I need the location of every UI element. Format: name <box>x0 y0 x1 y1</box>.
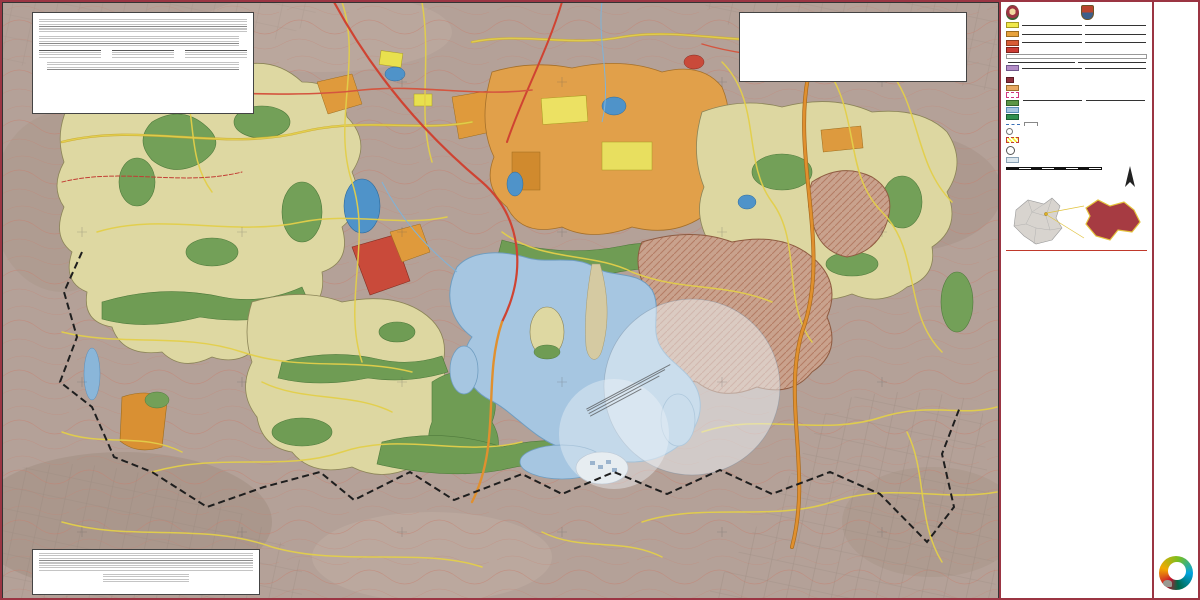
signature-blocks <box>39 50 247 58</box>
section-infraestructura <box>1006 77 1147 83</box>
section-equipamiento <box>1006 47 1147 64</box>
limite-sectores-icon <box>1006 121 1020 127</box>
location-map <box>1006 192 1147 248</box>
conjuntos-box <box>739 12 967 82</box>
limite-uso-suelo-icon <box>1024 122 1038 126</box>
title-bar <box>1152 2 1198 598</box>
notes-box <box>32 549 260 595</box>
section-habitacional <box>1006 22 1147 30</box>
atizapan-seal-icon <box>1081 5 1094 20</box>
certification-paragraph <box>47 62 238 71</box>
legend-panel <box>999 2 1152 598</box>
plan-parcial-swatch <box>1006 85 1019 91</box>
anp-swatch <box>1006 114 1019 120</box>
edomex-seal-icon <box>1006 5 1019 20</box>
certification-paragraph <box>39 19 247 33</box>
aerodrome-legend <box>1006 157 1147 163</box>
north-arrow <box>1119 165 1141 190</box>
industria-swatch <box>1006 65 1019 71</box>
equipamiento-swatch <box>1006 47 1019 53</box>
municipal-logo-icon <box>1159 556 1193 590</box>
map-id-section <box>1006 250 1147 262</box>
infraestructura-swatch <box>1006 77 1014 83</box>
scale-bar <box>1006 167 1102 171</box>
legend-header <box>1006 5 1147 20</box>
section-anp <box>1006 114 1147 120</box>
aerodrome-swatch <box>1006 157 1019 163</box>
section-centro-urbano <box>1006 31 1147 38</box>
section-corredor-urbano <box>1006 40 1147 46</box>
section-plan-parcial <box>1006 85 1147 98</box>
cuerpo-agua-swatch <box>1006 107 1019 113</box>
certification-box <box>32 12 254 114</box>
plan-parcial-outline-swatch <box>1006 92 1019 98</box>
equipamiento-subsystems <box>1006 54 1147 59</box>
inah-logo-icon <box>1006 146 1015 155</box>
certification-paragraph <box>39 36 239 46</box>
section-area-natural <box>1006 100 1147 113</box>
inah-radius-icon <box>1006 128 1013 135</box>
map-area <box>2 2 999 598</box>
centro-urbano-swatch <box>1006 31 1019 37</box>
corredor-swatch <box>1006 40 1019 46</box>
section-industria <box>1006 65 1147 75</box>
area-natural-swatch <box>1006 100 1019 106</box>
scale-section <box>1006 165 1147 190</box>
section-limites <box>1006 121 1147 135</box>
habitacional-swatch <box>1006 22 1019 28</box>
plan-sheet <box>0 0 1200 600</box>
section-conjuntos <box>1006 137 1147 143</box>
conjuntos-swatch <box>1006 137 1019 143</box>
inah-note <box>1006 146 1147 155</box>
